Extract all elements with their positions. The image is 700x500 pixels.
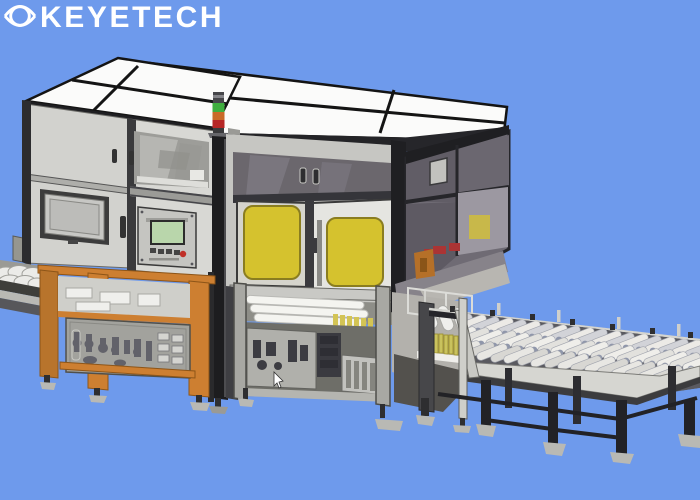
svg-text:KEYETECH: KEYETECH (40, 1, 224, 34)
